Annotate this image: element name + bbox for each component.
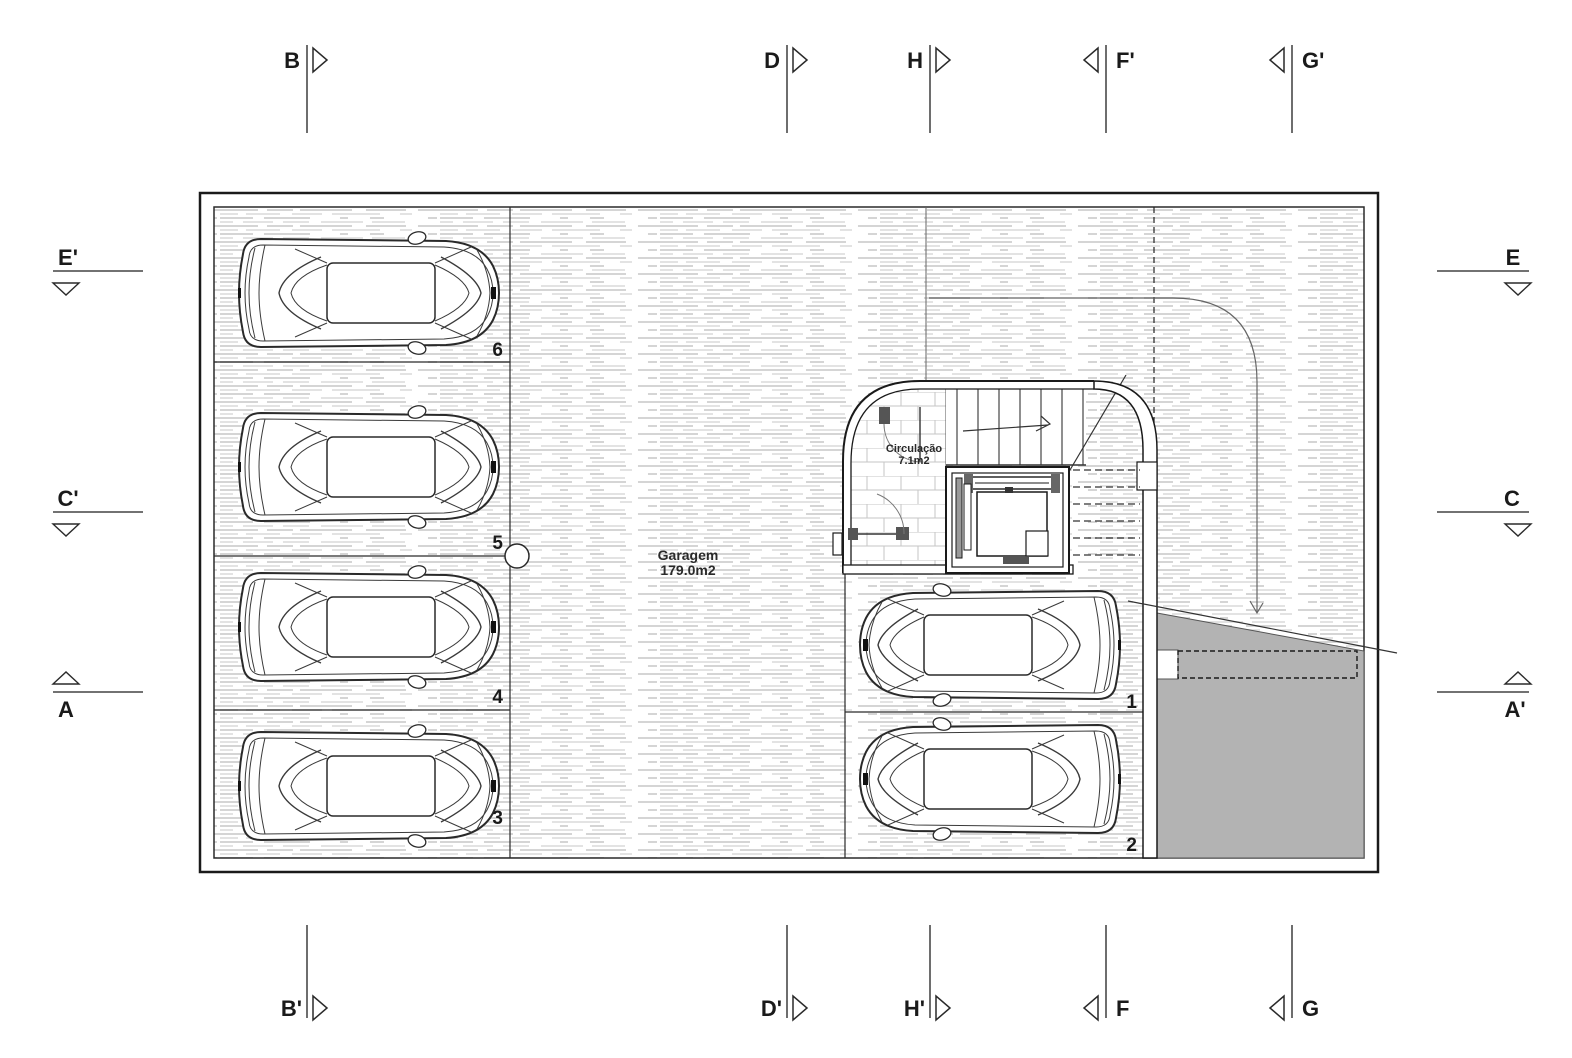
section-marker-F: F: [1084, 925, 1129, 1021]
door-jamb: [879, 407, 890, 424]
section-marker-H: H: [907, 45, 950, 133]
section-arrow-icon: [936, 996, 950, 1020]
section-marker-E-prime: E': [53, 245, 143, 295]
section-marker-F-prime: F': [1084, 45, 1135, 133]
section-label: B: [284, 48, 300, 73]
section-arrow-icon: [793, 48, 807, 72]
section-marker-B-prime: B': [281, 925, 327, 1021]
section-markers-left: E' C' A: [53, 245, 143, 722]
section-arrow-icon: [793, 996, 807, 1020]
section-marker-C-prime: C': [53, 486, 143, 536]
garage-area: 179.0m2: [660, 562, 715, 578]
section-label: E: [1506, 245, 1521, 270]
elevator-bracket: [1051, 474, 1060, 493]
section-label: D': [761, 996, 782, 1021]
section-marker-D-prime: D': [761, 925, 807, 1021]
section-marker-A: A: [53, 672, 143, 722]
door-jamb: [896, 527, 909, 540]
space-number-4: 4: [492, 687, 503, 708]
elevator: [946, 467, 1069, 573]
car-space-6: [238, 230, 499, 356]
space-number-6: 6: [492, 340, 503, 361]
section-label: G': [1302, 48, 1324, 73]
stair-flight-bg: [946, 385, 1086, 465]
circulation-area: 7.1m2: [898, 455, 929, 467]
elevator-guide-rail: [964, 484, 971, 550]
section-label: E': [58, 245, 78, 270]
section-marker-G-prime: G': [1270, 45, 1324, 133]
elevator-bracket: [1003, 557, 1029, 564]
section-arrow-icon: [1270, 48, 1284, 72]
circulation-label: Circulação: [886, 443, 943, 455]
section-marker-B: B: [284, 45, 327, 133]
garage-floor-plan-drawing: Garagem 179.0m2 Circulação 7.1m2 6 5 4 3…: [0, 0, 1572, 1058]
section-label: A': [1504, 697, 1525, 722]
section-label: C: [1504, 486, 1520, 511]
section-label: B': [281, 996, 302, 1021]
section-markers-bottom: B' D' H' F G: [281, 925, 1319, 1021]
section-label: H: [907, 48, 923, 73]
space-number-2: 2: [1126, 835, 1137, 856]
floor-plan-page: Garagem 179.0m2 Circulação 7.1m2 6 5 4 3…: [0, 0, 1572, 1058]
ramp-notch: [1157, 650, 1178, 679]
section-arrow-icon: [53, 524, 79, 536]
section-label: H': [904, 996, 925, 1021]
section-marker-E: E: [1437, 245, 1531, 295]
section-label: D: [764, 48, 780, 73]
section-arrow-icon: [1084, 996, 1098, 1020]
section-marker-C: C: [1437, 486, 1531, 536]
section-marker-H-prime: H': [904, 925, 950, 1021]
ramp-slab: [1157, 613, 1364, 858]
section-label: A: [58, 697, 74, 722]
section-arrow-icon: [1270, 996, 1284, 1020]
car-space-4: [238, 564, 499, 690]
section-arrow-icon: [1084, 48, 1098, 72]
elevator-detail: [1005, 487, 1013, 493]
space-number-3: 3: [492, 808, 503, 829]
section-arrow-icon: [1505, 283, 1531, 295]
elevator-guide-rail: [956, 478, 962, 558]
section-arrow-icon: [53, 283, 79, 295]
section-label: C': [57, 486, 78, 511]
section-arrow-icon: [53, 672, 79, 684]
section-marker-A-prime: A': [1437, 672, 1531, 722]
ramp: [1157, 613, 1364, 858]
garage-label: Garagem: [658, 547, 719, 563]
section-markers-right: E C A': [1437, 245, 1531, 722]
car-space-2: [860, 716, 1121, 842]
circulation-floor: [851, 389, 946, 571]
space-number-1: 1: [1126, 692, 1137, 713]
section-arrow-icon: [1505, 524, 1531, 536]
section-label: F: [1116, 996, 1129, 1021]
car-space-1: [860, 582, 1121, 708]
section-label: G: [1302, 996, 1319, 1021]
space-number-5: 5: [492, 533, 503, 554]
section-arrow-icon: [936, 48, 950, 72]
door-jamb: [848, 528, 858, 540]
wall-pilaster: [1137, 462, 1157, 490]
section-marker-G: G: [1270, 925, 1319, 1021]
section-arrow-icon: [313, 996, 327, 1020]
column: [505, 544, 529, 568]
car-space-5: [238, 404, 499, 530]
section-marker-D: D: [764, 45, 807, 133]
section-label: F': [1116, 48, 1135, 73]
wall-pilaster: [833, 533, 842, 555]
section-arrow-icon: [313, 48, 327, 72]
car-space-3: [238, 723, 499, 849]
section-arrow-icon: [1505, 672, 1531, 684]
section-markers-top: B D H F' G': [284, 45, 1324, 133]
elevator-car-detail: [1026, 531, 1048, 556]
